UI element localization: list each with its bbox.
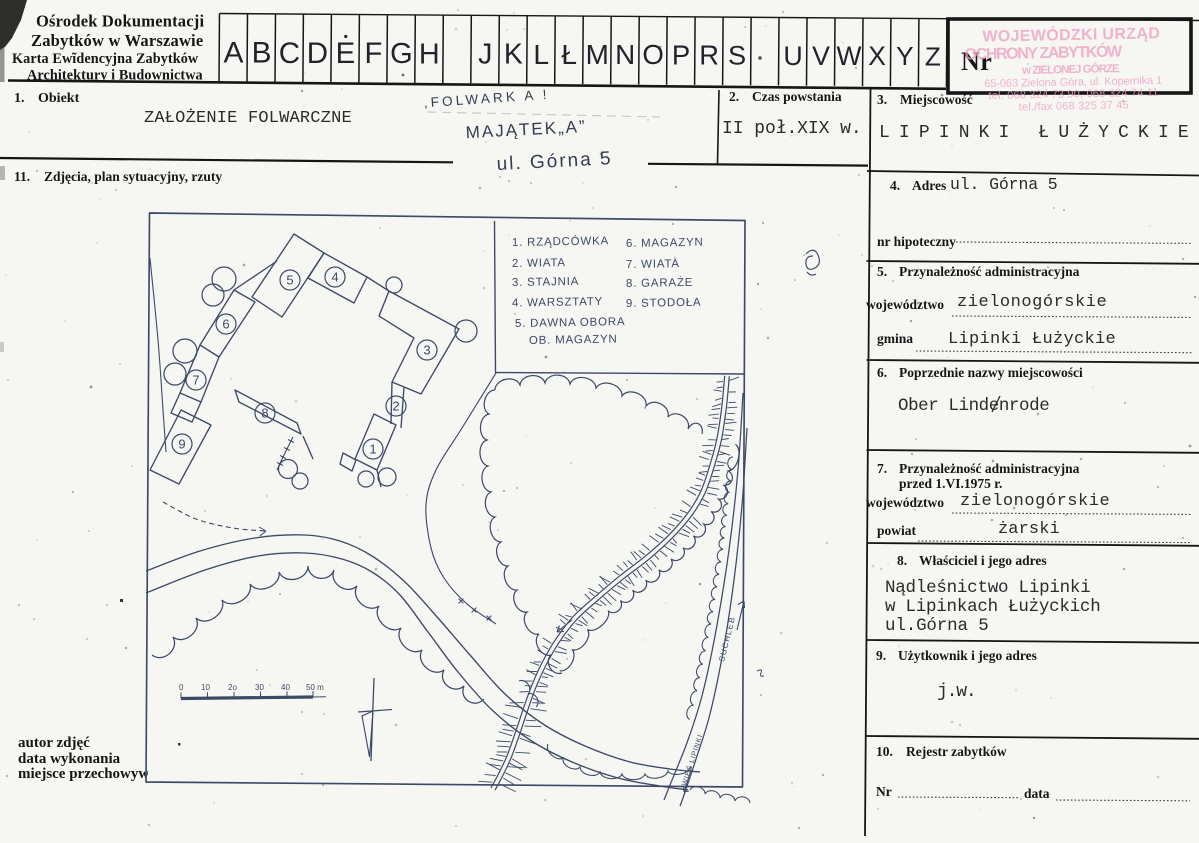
svg-text:F: F [364,38,382,70]
svg-text:Zdjęcia, plan sytuacyjny, rzut: Zdjęcia, plan sytuacyjny, rzuty [44,169,222,184]
svg-text:ZAŁOŻENIE FOLWARCZNE: ZAŁOŻENIE FOLWARCZNE [144,108,352,128]
svg-text:4: 4 [331,270,338,285]
svg-text:OB. MAGAZYN: OB. MAGAZYN [529,333,618,347]
svg-text:C: C [279,37,300,70]
svg-text:7: 7 [192,373,199,388]
svg-text:data: data [1024,786,1050,801]
svg-text:4. WARSZTATY: 4. WARSZTATY [512,296,603,310]
svg-text:J: J [478,39,492,71]
svg-text:Użytkownik i jego adres: Użytkownik i jego adres [898,648,1037,663]
svg-text:G: G [390,38,413,70]
svg-text:2. WIATA: 2. WIATA [512,257,566,270]
svg-text:L: L [533,38,549,70]
svg-text:zielonogórskie: zielonogórskie [957,293,1107,312]
svg-text:ul.Górna 5: ul.Górna 5 [885,616,989,636]
svg-text:Y: Y [896,41,913,71]
svg-text:Poprzednie nazwy miejscowości: Poprzednie nazwy miejscowości [899,365,1083,380]
svg-text:O: O [642,39,663,70]
svg-text:8. GARAŻE: 8. GARAŻE [626,276,693,290]
svg-text:8.: 8. [897,553,907,568]
svg-text:II poł.XIX w.: II poł.XIX w. [722,119,862,139]
svg-text:11.: 11. [14,169,30,184]
svg-text:30: 30 [255,683,264,692]
svg-text:Czas powstania: Czas powstania [752,89,842,104]
svg-text:3.: 3. [877,92,887,107]
svg-text:N: N [615,39,635,70]
svg-text:6.: 6. [877,365,887,380]
svg-text:Rejestr zabytków: Rejestr zabytków [906,744,1007,759]
svg-text:2: 2 [392,399,399,414]
svg-text:10: 10 [201,683,210,692]
svg-text:0: 0 [179,683,184,692]
svg-text:Nądleśnictwo Lipinki: Nądleśnictwo Lipinki [885,578,1091,598]
svg-text:8: 8 [261,406,268,421]
svg-text:5. DAWNA OBORA: 5. DAWNA OBORA [515,316,626,330]
svg-text:Obiekt: Obiekt [38,91,80,106]
svg-text:Lipinki Łużyckie: Lipinki Łużyckie [948,330,1116,349]
svg-text:5.: 5. [877,264,887,279]
svg-text:E: E [336,37,356,70]
svg-text:5: 5 [286,273,293,288]
svg-text:tel./fax 068 325 37 45: tel./fax 068 325 37 45 [1019,99,1129,113]
svg-text:7. WIATA: 7. WIATA [626,258,680,271]
svg-text:autor zdjęć: autor zdjęć [18,735,90,751]
svg-text:M: M [586,39,609,70]
svg-text:Przynależność administracyjna: Przynależność administracyjna [899,461,1080,476]
svg-text:4.: 4. [890,178,900,193]
svg-text:V: V [812,41,830,71]
svg-text:3. STAJNIA: 3. STAJNIA [512,276,579,289]
svg-text:powiat: powiat [877,523,917,538]
svg-text:U: U [783,41,802,71]
svg-text:1. RZĄDCÓWKA: 1. RZĄDCÓWKA [512,234,609,249]
svg-text:6. MAGAZYN: 6. MAGAZYN [626,237,704,250]
svg-text:zielonogórskie: zielonogórskie [960,492,1110,511]
svg-text:1.: 1. [14,91,25,106]
svg-text:3: 3 [423,343,430,358]
svg-text:K: K [504,39,523,71]
svg-text:województwo: województwo [866,297,944,312]
svg-text:9: 9 [178,437,185,452]
svg-text:D: D [307,37,328,70]
svg-text:Zabytków w Warszawie: Zabytków w Warszawie [31,31,203,50]
svg-text:ul. Górna 5: ul. Górna 5 [950,175,1058,194]
svg-text:Właściciel i jego adres: Właściciel i jego adres [919,553,1047,568]
svg-text:Z: Z [925,41,941,71]
svg-text:X: X [868,41,886,71]
svg-text:Przynależność administracyjna: Przynależność administracyjna [899,264,1080,279]
svg-text:P: P [672,39,690,70]
svg-text:w ZIELONEJ GÓRZE: w ZIELONEJ GÓRZE [1021,62,1120,77]
svg-text:9. STODOŁA: 9. STODOŁA [626,297,702,310]
svg-text:2o: 2o [228,683,237,692]
svg-text:R: R [699,40,719,71]
svg-text:S: S [728,40,746,71]
svg-text:Nr: Nr [876,784,892,799]
svg-text:2.: 2. [729,89,739,104]
svg-text:W: W [836,41,861,71]
svg-text:Ł: Ł [561,39,577,70]
svg-text:Ober Lindenrode: Ober Lindenrode [898,396,1050,416]
svg-text:data wykonania: data wykonania [18,751,121,767]
svg-text:7.: 7. [877,461,887,476]
svg-text:B: B [252,37,272,70]
svg-text:żarski: żarski [998,520,1060,539]
svg-text:Adres: Adres [912,178,946,193]
svg-text:województwo: województwo [866,495,944,510]
svg-text:1: 1 [369,442,376,457]
svg-text:50 m: 50 m [306,683,324,692]
svg-text:j.w.: j.w. [937,682,977,702]
svg-text:nr hipoteczny: nr hipoteczny [877,234,956,249]
svg-text:przed 1.VI.1975 r.: przed 1.VI.1975 r. [899,476,1002,491]
svg-text:9.: 9. [876,648,886,663]
svg-text:gmina: gmina [877,331,913,346]
svg-text:A: A [224,37,244,70]
svg-text:w Lipinkach Łużyckich: w Lipinkach Łużyckich [885,597,1101,617]
svg-text:40: 40 [281,683,290,692]
svg-text:Ośrodek Dokumentacji: Ośrodek Dokumentacji [36,12,204,31]
svg-text:H: H [419,38,440,70]
svg-text:10.: 10. [876,744,893,759]
svg-text:Miejscowość: Miejscowość [900,92,973,107]
svg-text:6: 6 [222,317,229,332]
svg-text:Karta Ewĩdencyjna Zabytków: Karta Ewĩdencyjna Zabytków [12,51,199,67]
